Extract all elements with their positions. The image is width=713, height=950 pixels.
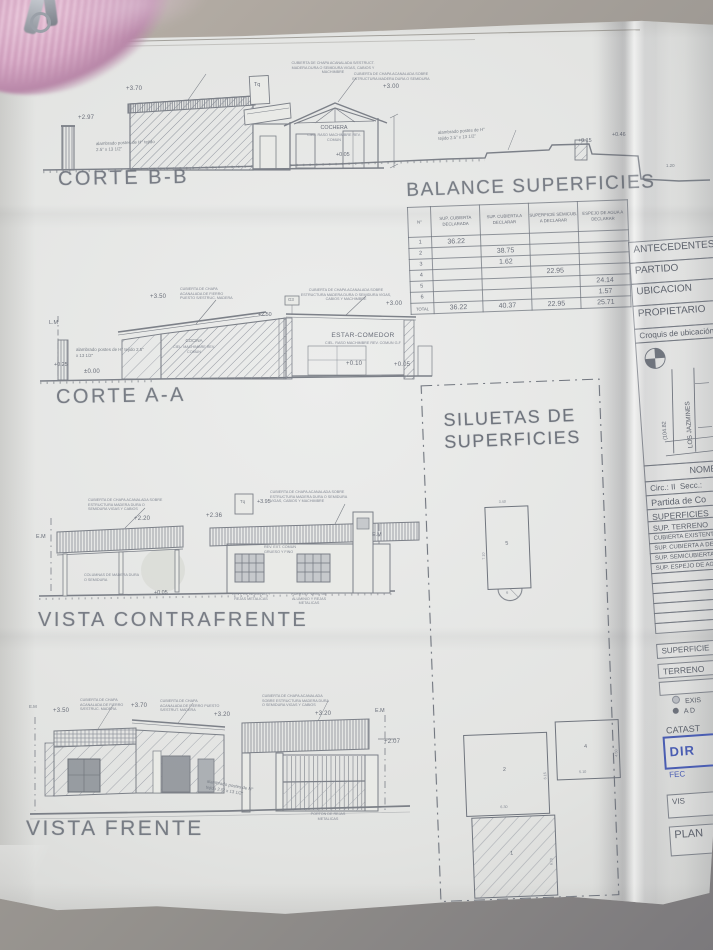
row-num: 5: [410, 281, 433, 293]
frente-roof-note-2: CUBIERTA DE CHAPA ACANALADA DE FIERRO PU…: [160, 699, 220, 713]
row-num: 1: [409, 237, 432, 249]
cell: 25.71: [581, 296, 631, 309]
corte-aa-lm-label: L.M: [49, 320, 58, 327]
row-num: 3: [409, 259, 432, 271]
vista-contrafrente-title: VISTA CONTRAFRENTE: [38, 608, 308, 633]
corte-aa-room-left-sub: CIEL. MACHIMBRE REV. COMUN: [168, 345, 220, 354]
corte-aa-level-0: ±0.00: [84, 369, 100, 377]
row-num: TOTAL: [411, 303, 434, 315]
corte-aa-roof-note-1: CUBIERTA DE CHAPA ACANALADA DE FIERRO PU…: [180, 287, 236, 301]
corte-aa-room-left: COCINA: [168, 338, 220, 344]
contrafrente-level-236: +2.36: [206, 513, 222, 521]
silueta-1-label: 1: [510, 851, 513, 858]
siluetas-drawing: [418, 374, 638, 911]
frente-level-320a: +3.20: [214, 712, 230, 720]
silueta-2-label: 2: [503, 767, 506, 774]
silueta-5-label: 5: [505, 541, 508, 548]
silueta-4-label: 4: [584, 744, 587, 751]
cell: 40.37: [483, 299, 532, 312]
balance-col-3: SUPERFICIE SEMICUB. A DECLARAR: [528, 202, 578, 234]
balance-col-4: ESPEJO DE AGUA A DECLARAR: [577, 200, 628, 232]
panel-croquis-map: LOS JAZMINES (104.82: [635, 334, 713, 466]
title-block-panel: ANTECEDENTES PARTIDO UBICACION PROPIETAR…: [628, 234, 713, 856]
frente-level-207: +2.07: [384, 739, 400, 747]
corte-aa-marker-g3: G3: [288, 297, 294, 303]
frente-level-320b: +3.20: [315, 711, 331, 719]
corte-bb-level-left: +2.97: [78, 115, 94, 123]
contrafrente-level-tank: +3.95: [257, 499, 271, 506]
corte-bb-fence-note: alambrado postes de H° tejido 2.5" x 13 …: [96, 139, 160, 152]
corte-aa-level-025: +0.25: [54, 362, 68, 369]
balance-table: N° SUP. CUBIERTA DECLARADA SUP. CUBIERTA…: [407, 199, 632, 315]
frente-gate-note: PORTON DE REJAS METALICAS: [300, 812, 356, 821]
corte-bb-level-floor: +0.05: [336, 152, 350, 159]
frente-roof-note-1: CUBIERTA DE CHAPA ACANALADA DE FIERRO S/…: [80, 698, 136, 712]
corte-aa-level-300: +3.00: [386, 301, 402, 309]
fold-corner-highlight: [0, 845, 55, 915]
contrafrente-rev-note: REV. EXT. COMUN GRUESO Y FINO: [264, 545, 306, 554]
corte-bb-level-top: +3.70: [126, 86, 142, 94]
ref-declarar-label: A D: [684, 707, 696, 715]
vista-frente-title: VISTA FRENTE: [26, 816, 204, 842]
corte-bb-room-label: COCHERA: [303, 125, 365, 132]
silueta-6-label: 6: [506, 591, 508, 596]
silueta-5-height: 7.10: [482, 552, 487, 559]
frente-em-right: E.M: [375, 708, 385, 715]
silueta-1-height: 6.70: [549, 858, 554, 865]
contrafrente-window-note-1: VENT. DE ALUMINIO Y REJAS METALICAS: [228, 592, 274, 601]
contrafrente-roof-note-1: CUBIERTA DE CHAPA ACANALADA SOBRE ESTRUC…: [88, 498, 164, 512]
corte-bb-tank-label: Tq: [254, 82, 260, 89]
row-num: 4: [410, 270, 433, 282]
cell: 36.22: [434, 301, 483, 314]
keyring-icon: [30, 12, 51, 33]
contrafrente-tank-label: Tq: [240, 499, 245, 505]
photo-background: { "photo":{"accent_blue":"#4a5db2","pape…: [0, 0, 713, 950]
corte-bb-level-t1: +0.15: [578, 138, 592, 145]
secc-label: Secc.:: [680, 480, 703, 491]
corte-aa-room-label: ESTAR-COMEDOR: [322, 332, 404, 340]
croquis-dim: (104.82: [662, 421, 670, 440]
corte-bb-dim-t: 1.20: [666, 163, 675, 169]
cell: 22.95: [532, 297, 581, 310]
balance-col-1: SUP. CUBIERTA DECLARADA: [430, 205, 480, 237]
plan-paper-sheet: alambrado postes de H° tejido 2.5" x 13 …: [0, 0, 713, 950]
corte-aa-roof-note-2: CUBIERTA DE CHAPA ACANALADA SOBRE ESTRUC…: [296, 288, 396, 302]
siluetas-block: SILUETAS DE SUPERFICIES 5 3.40 7.10 6 2 …: [418, 374, 638, 911]
corte-bb-title: CORTE B-B: [58, 165, 189, 192]
silueta-2-height: 6.15: [543, 772, 548, 779]
corte-aa-room-sub: CIEL. RASO MACHIMBRE REV. COMUN G-F: [322, 341, 404, 346]
circ-label: Circ.: II: [650, 482, 676, 493]
corte-bb-level-house: +3.00: [383, 84, 399, 92]
frente-level-370: +3.70: [131, 703, 147, 711]
corte-aa-level-010: +0.10: [346, 361, 362, 369]
row-num: 6: [410, 292, 433, 304]
silueta-4-height: 4.50: [614, 749, 619, 756]
contrafrente-roof-note-2: CUBIERTA DE CHAPA ACANALADA SOBRE ESTRUC…: [270, 490, 358, 504]
silueta-5-width: 3.40: [499, 500, 506, 505]
corte-aa-level-250: +2.50: [258, 312, 272, 319]
balance-col-2: SUP. CUBIERTA A DECLARAR: [479, 203, 529, 235]
corte-bb-roof-note-2: CUBIERTA DE CHAPA ACANALADA SOBRE ESTRUC…: [352, 72, 430, 81]
corte-bb-level-t2: +0.46: [612, 132, 626, 139]
corte-bb-room-sub: CIEL. RASO MACHIMBRE REV. COMUN: [303, 133, 365, 142]
contrafrente-em-left: E.M: [36, 534, 46, 541]
contrafrente-columns-note: COLUMNAS DE MADERA DURA O SEMIDURA: [84, 573, 140, 582]
balance-col-n: N°: [407, 207, 431, 238]
row-num: 2: [409, 248, 432, 260]
corte-aa-fence-note: alambrado postes de H° tejido 2.5" x 13 …: [76, 347, 146, 358]
contrafrente-level-220: +2.20: [134, 516, 150, 524]
corte-aa-level-005: +0.05: [394, 362, 410, 370]
ref-declarar-dot-icon: [673, 708, 679, 714]
ref-existente-dot-icon: [672, 695, 681, 704]
ref-existente-label: EXIS: [685, 697, 701, 705]
contrafrente-em-right: E.M: [372, 532, 382, 539]
contrafrente-window-note-2: PUERTA Y VENT. DE ALUMINIO Y REJAS METAL…: [284, 592, 334, 606]
frente-roof-note-3: CUBIERTA DE CHAPA ACANALADA SOBRE ESTRUC…: [262, 694, 332, 708]
contrafrente-level-005: +0.05: [154, 590, 168, 597]
silueta-2-width: 6.30: [500, 805, 507, 810]
silueta-4-width: 5.10: [579, 770, 586, 775]
corte-aa-level-350: +3.50: [150, 294, 166, 302]
frente-em-left: E.M: [29, 704, 37, 710]
croquis-sketch: [636, 335, 713, 465]
frente-level-350: +3.50: [53, 708, 69, 716]
balance-superficies-block: BALANCE SUPERFICIES N° SUP. CUBIERTA DEC…: [406, 171, 660, 315]
corte-aa-title: CORTE A-A: [56, 383, 186, 410]
